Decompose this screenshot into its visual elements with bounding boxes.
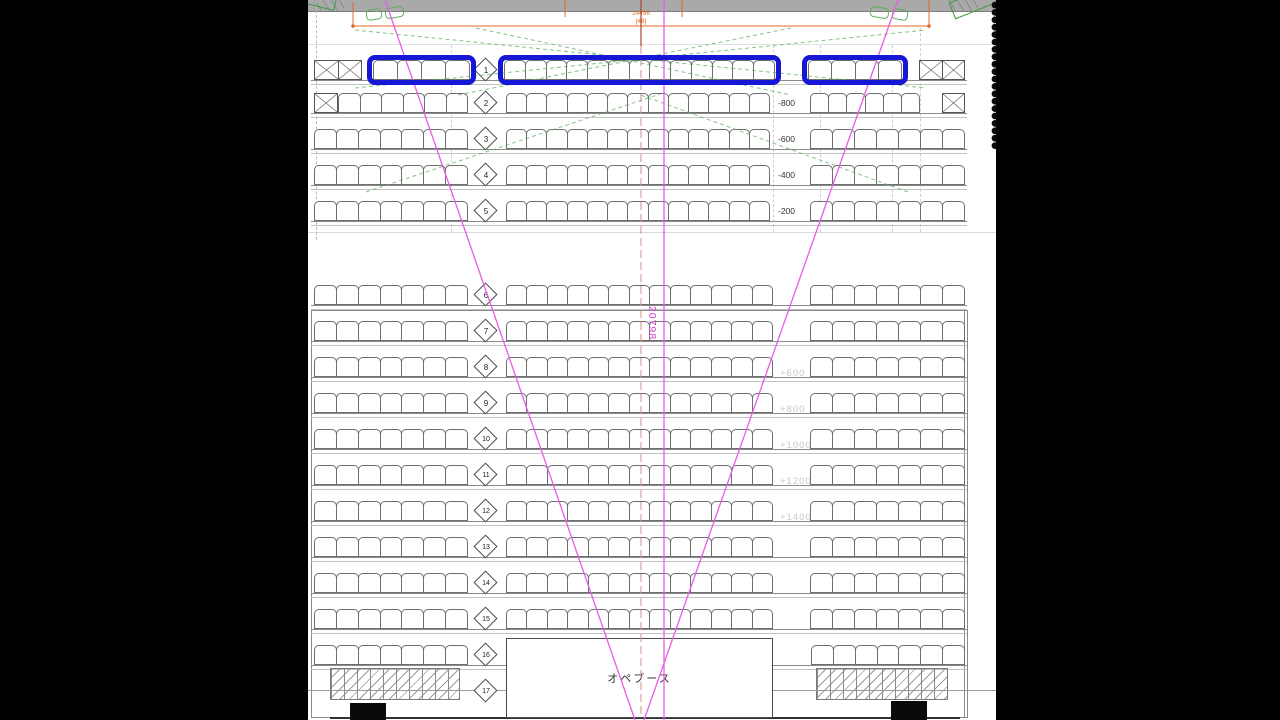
- seat-group: [810, 165, 965, 185]
- seat: [876, 165, 899, 185]
- seat: [749, 129, 770, 149]
- seat: [380, 501, 403, 521]
- seat: [731, 537, 752, 557]
- seat: [876, 357, 899, 377]
- seat: [445, 537, 468, 557]
- seating-plan-drawing: 12-8003-6004-4005-200678+6009+80010+1000…: [308, 0, 996, 720]
- seat: [546, 201, 567, 221]
- seat-group: [810, 201, 965, 221]
- row-step-line: [311, 117, 967, 118]
- seat: [629, 465, 650, 485]
- highlight-outline: [498, 55, 781, 85]
- seat: [854, 609, 877, 629]
- row-number-marker: 6: [473, 282, 499, 308]
- row-step-line: [311, 417, 967, 418]
- seat: [360, 93, 383, 113]
- seat: [506, 321, 527, 341]
- seat: [445, 465, 468, 485]
- seat: [629, 429, 650, 449]
- seat: [336, 573, 359, 593]
- seat: [731, 357, 752, 377]
- seat: [876, 285, 899, 305]
- seat: [336, 201, 359, 221]
- seat: [810, 93, 829, 113]
- seat: [506, 573, 527, 593]
- seat: [688, 201, 709, 221]
- seat: [752, 537, 773, 557]
- seat: [526, 573, 547, 593]
- seat: [711, 465, 732, 485]
- row-number-label: 13: [473, 534, 499, 560]
- seat: [506, 201, 527, 221]
- seat: [752, 285, 773, 305]
- seat: [711, 501, 732, 521]
- row-number-label: 17: [473, 678, 499, 704]
- seat: [731, 285, 752, 305]
- row-step-line: [311, 489, 967, 490]
- seat: [627, 93, 648, 113]
- seat: [832, 321, 855, 341]
- operator-booth: オペブース: [506, 638, 773, 718]
- seat: [832, 465, 855, 485]
- seat: [690, 429, 711, 449]
- dimension-value: 14496: [619, 10, 663, 18]
- row-number-label: 5: [473, 198, 499, 224]
- seat: [336, 321, 359, 341]
- seat-group: [506, 321, 773, 341]
- seat-group: [314, 393, 468, 413]
- seat: [567, 285, 588, 305]
- seat: [711, 285, 732, 305]
- seat: [526, 537, 547, 557]
- row-number-marker: 11: [473, 462, 499, 488]
- seat: [423, 465, 446, 485]
- crossed-seat-group: [919, 60, 965, 80]
- seat: [336, 165, 359, 185]
- seat: [445, 609, 468, 629]
- seat: [832, 357, 855, 377]
- seat: [526, 201, 547, 221]
- row-baseline: [311, 113, 967, 114]
- seat: [920, 321, 943, 341]
- seat: [567, 165, 588, 185]
- seat: [810, 573, 833, 593]
- seat: [898, 129, 921, 149]
- seat: [526, 93, 547, 113]
- seat: [920, 609, 943, 629]
- seat: [627, 201, 648, 221]
- seat: [898, 465, 921, 485]
- seat: [649, 609, 670, 629]
- seat: [336, 393, 359, 413]
- seat: [810, 285, 833, 305]
- seat-group: [314, 645, 468, 665]
- seat: [876, 573, 899, 593]
- seat: [445, 357, 468, 377]
- seat: [708, 129, 729, 149]
- seat: [711, 573, 732, 593]
- seat: [567, 201, 588, 221]
- seat: [832, 201, 855, 221]
- seat-group: [314, 537, 468, 557]
- letterbox-right: [996, 0, 1280, 720]
- seat: [649, 429, 670, 449]
- seat: [832, 393, 855, 413]
- seat-group: [314, 321, 468, 341]
- seat: [567, 573, 588, 593]
- seat: [358, 609, 381, 629]
- seat: [876, 537, 899, 557]
- seat: [920, 357, 943, 377]
- seat: [690, 609, 711, 629]
- seat: [752, 609, 773, 629]
- seat: [445, 429, 468, 449]
- seat: [629, 393, 650, 413]
- seat: [401, 465, 424, 485]
- seat: [920, 129, 943, 149]
- seat: [749, 201, 770, 221]
- seat: [708, 201, 729, 221]
- seat: [380, 429, 403, 449]
- seat: [567, 357, 588, 377]
- seat: [358, 201, 381, 221]
- seat: [688, 93, 709, 113]
- seat: [901, 93, 920, 113]
- seat: [854, 429, 877, 449]
- pillar-block-left: [350, 703, 386, 720]
- seat: [547, 501, 568, 521]
- row-baseline: [311, 221, 967, 222]
- row-number-marker: 12: [473, 498, 499, 524]
- seat: [898, 537, 921, 557]
- seat: [445, 501, 468, 521]
- seat: [711, 321, 732, 341]
- seat: [445, 201, 468, 221]
- seat: [381, 93, 404, 113]
- seat: [649, 537, 670, 557]
- seat: [810, 357, 833, 377]
- seat: [942, 573, 965, 593]
- seat: [336, 129, 359, 149]
- seat: [828, 93, 847, 113]
- seat: [358, 501, 381, 521]
- row-baseline: [311, 413, 967, 414]
- sightline-length-label: 20798: [646, 306, 658, 340]
- seat: [898, 429, 921, 449]
- seat: [506, 393, 527, 413]
- seat: [401, 201, 424, 221]
- crossed-seat: [919, 60, 943, 80]
- seat: [942, 393, 965, 413]
- row-step-line: [311, 381, 967, 382]
- row-step-line: [311, 525, 967, 526]
- row-baseline: [311, 449, 967, 450]
- row-step-line: [311, 345, 967, 346]
- seat: [920, 285, 943, 305]
- seat: [711, 609, 732, 629]
- row-baseline: [311, 557, 967, 558]
- seat: [854, 537, 877, 557]
- seat: [920, 501, 943, 521]
- seat-group: [314, 165, 468, 185]
- seat: [423, 321, 446, 341]
- seat: [876, 429, 899, 449]
- seat: [608, 321, 629, 341]
- seat-group: [506, 537, 773, 557]
- seat: [729, 201, 750, 221]
- seat: [854, 201, 877, 221]
- seat: [690, 537, 711, 557]
- seat: [608, 501, 629, 521]
- seat: [668, 165, 689, 185]
- crossed-seat: [338, 60, 363, 80]
- seat: [506, 357, 527, 377]
- seat: [567, 393, 588, 413]
- seat: [942, 321, 965, 341]
- seat: [358, 537, 381, 557]
- seat: [920, 165, 943, 185]
- seat: [649, 357, 670, 377]
- row-baseline: [311, 521, 967, 522]
- seat: [731, 573, 752, 593]
- seat: [445, 321, 468, 341]
- seat: [876, 501, 899, 521]
- seat: [526, 321, 547, 341]
- seat: [752, 357, 773, 377]
- letterbox-left: [0, 0, 308, 720]
- row-step-line: [311, 153, 967, 154]
- seat: [506, 537, 527, 557]
- seat: [445, 285, 468, 305]
- seat: [546, 129, 567, 149]
- seat: [898, 357, 921, 377]
- seat: [690, 465, 711, 485]
- seat: [546, 93, 567, 113]
- seat: [690, 357, 711, 377]
- seat: [942, 201, 965, 221]
- seat-group: [314, 285, 468, 305]
- seat-group: [810, 321, 965, 341]
- seat: [670, 321, 691, 341]
- seat: [380, 609, 403, 629]
- seat-group: [810, 429, 965, 449]
- row-baseline: [311, 149, 967, 150]
- seat: [731, 501, 752, 521]
- seat: [711, 429, 732, 449]
- seat: [810, 429, 833, 449]
- seat: [588, 537, 609, 557]
- seat: [811, 645, 834, 665]
- seat: [526, 465, 547, 485]
- seat: [865, 93, 884, 113]
- seat: [648, 165, 669, 185]
- crossed-seat: [314, 60, 339, 80]
- row-number-label: 2: [473, 90, 499, 116]
- row-number-marker: 4: [473, 162, 499, 188]
- seat: [668, 93, 689, 113]
- seat-group: [314, 357, 468, 377]
- row-number-label: 7: [473, 318, 499, 344]
- seat: [942, 357, 965, 377]
- seat: [752, 393, 773, 413]
- seat: [547, 465, 568, 485]
- seat-group: [506, 465, 773, 485]
- seat: [608, 393, 629, 413]
- pillar-block-right: [891, 701, 927, 720]
- seat: [898, 201, 921, 221]
- seat: [648, 93, 669, 113]
- seat: [854, 465, 877, 485]
- seat: [358, 465, 381, 485]
- seat: [567, 321, 588, 341]
- seat-group: [811, 645, 965, 665]
- row-number-label: 4: [473, 162, 499, 188]
- seat: [314, 645, 337, 665]
- row-step-line: [311, 597, 967, 598]
- seat: [708, 93, 729, 113]
- seat-group: [810, 537, 965, 557]
- seat-group: [314, 129, 468, 149]
- seat: [942, 645, 965, 665]
- seat: [833, 645, 856, 665]
- seat: [445, 129, 468, 149]
- seat: [752, 573, 773, 593]
- seat-group: [506, 129, 770, 149]
- seat: [588, 357, 609, 377]
- seat: [423, 537, 446, 557]
- seat: [629, 357, 650, 377]
- seat: [649, 285, 670, 305]
- row-step-line: [311, 453, 967, 454]
- crossed-seat-group: [942, 93, 965, 113]
- seat: [690, 393, 711, 413]
- seat: [648, 129, 669, 149]
- seat: [649, 573, 670, 593]
- row-baseline: [311, 485, 967, 486]
- seat: [380, 393, 403, 413]
- row-number-marker: 2: [473, 90, 499, 116]
- seat: [608, 573, 629, 593]
- seat: [877, 645, 900, 665]
- seat: [314, 357, 337, 377]
- seat: [846, 93, 865, 113]
- seat: [547, 321, 568, 341]
- seat: [854, 321, 877, 341]
- seat: [690, 573, 711, 593]
- elevation-label: -400: [778, 170, 795, 180]
- seat: [567, 537, 588, 557]
- seat: [688, 129, 709, 149]
- row-number-label: 8: [473, 354, 499, 380]
- seat: [314, 465, 337, 485]
- seat: [810, 321, 833, 341]
- row-number-label: 1: [473, 57, 499, 83]
- seat: [401, 393, 424, 413]
- seat-group: [506, 93, 770, 113]
- highlight-outline: [802, 55, 908, 85]
- row-number-label: 14: [473, 570, 499, 596]
- seat: [731, 429, 752, 449]
- stairs-hatch-left: [330, 668, 460, 700]
- seat: [380, 201, 403, 221]
- seat: [832, 429, 855, 449]
- seat: [401, 429, 424, 449]
- row-step-line: [311, 309, 967, 310]
- crossed-seat: [942, 60, 966, 80]
- seat: [423, 201, 446, 221]
- seat: [588, 501, 609, 521]
- seat: [749, 93, 770, 113]
- seat-group: [810, 285, 965, 305]
- seat-group: [810, 129, 965, 149]
- seat: [547, 357, 568, 377]
- row-number-marker: 15: [473, 606, 499, 632]
- seat: [423, 645, 446, 665]
- seat: [401, 285, 424, 305]
- seat: [314, 501, 337, 521]
- seat-group: [506, 357, 773, 377]
- video-frame: 12-8003-6004-4005-200678+6009+80010+1000…: [0, 0, 1280, 720]
- seat: [423, 501, 446, 521]
- seat: [898, 393, 921, 413]
- seat: [942, 129, 965, 149]
- seat: [401, 573, 424, 593]
- seat: [670, 429, 691, 449]
- seat: [832, 609, 855, 629]
- stairs-hatch-right: [816, 668, 948, 700]
- seat: [380, 285, 403, 305]
- seat: [749, 165, 770, 185]
- seat: [380, 357, 403, 377]
- elevation-label: +1400: [780, 512, 812, 523]
- seat: [855, 645, 878, 665]
- seat-group: [810, 93, 920, 113]
- seat: [854, 285, 877, 305]
- seat: [314, 573, 337, 593]
- seat: [752, 429, 773, 449]
- seat: [445, 645, 468, 665]
- seat: [832, 501, 855, 521]
- seat: [588, 285, 609, 305]
- seat: [670, 285, 691, 305]
- seat: [338, 93, 361, 113]
- row-number-label: 11: [473, 462, 499, 488]
- elevation-label: +1200: [780, 476, 812, 487]
- seat: [401, 645, 424, 665]
- seat: [567, 501, 588, 521]
- seat: [731, 321, 752, 341]
- row-step-line: [311, 189, 967, 190]
- seat: [336, 429, 359, 449]
- seat: [920, 537, 943, 557]
- seat: [629, 285, 650, 305]
- seat: [629, 573, 650, 593]
- dimension-sub: [48]: [619, 18, 663, 26]
- seat: [898, 609, 921, 629]
- seat-group: [506, 285, 773, 305]
- seat: [336, 645, 359, 665]
- highlight-outline: [367, 55, 476, 85]
- seat: [358, 645, 381, 665]
- seat: [567, 609, 588, 629]
- seat: [506, 465, 527, 485]
- elevation-label: -200: [778, 206, 795, 216]
- seating-rows: 12-8003-6004-4005-200678+6009+80010+1000…: [308, 0, 996, 720]
- seat: [711, 357, 732, 377]
- seat: [506, 609, 527, 629]
- seat: [423, 285, 446, 305]
- seat: [810, 165, 833, 185]
